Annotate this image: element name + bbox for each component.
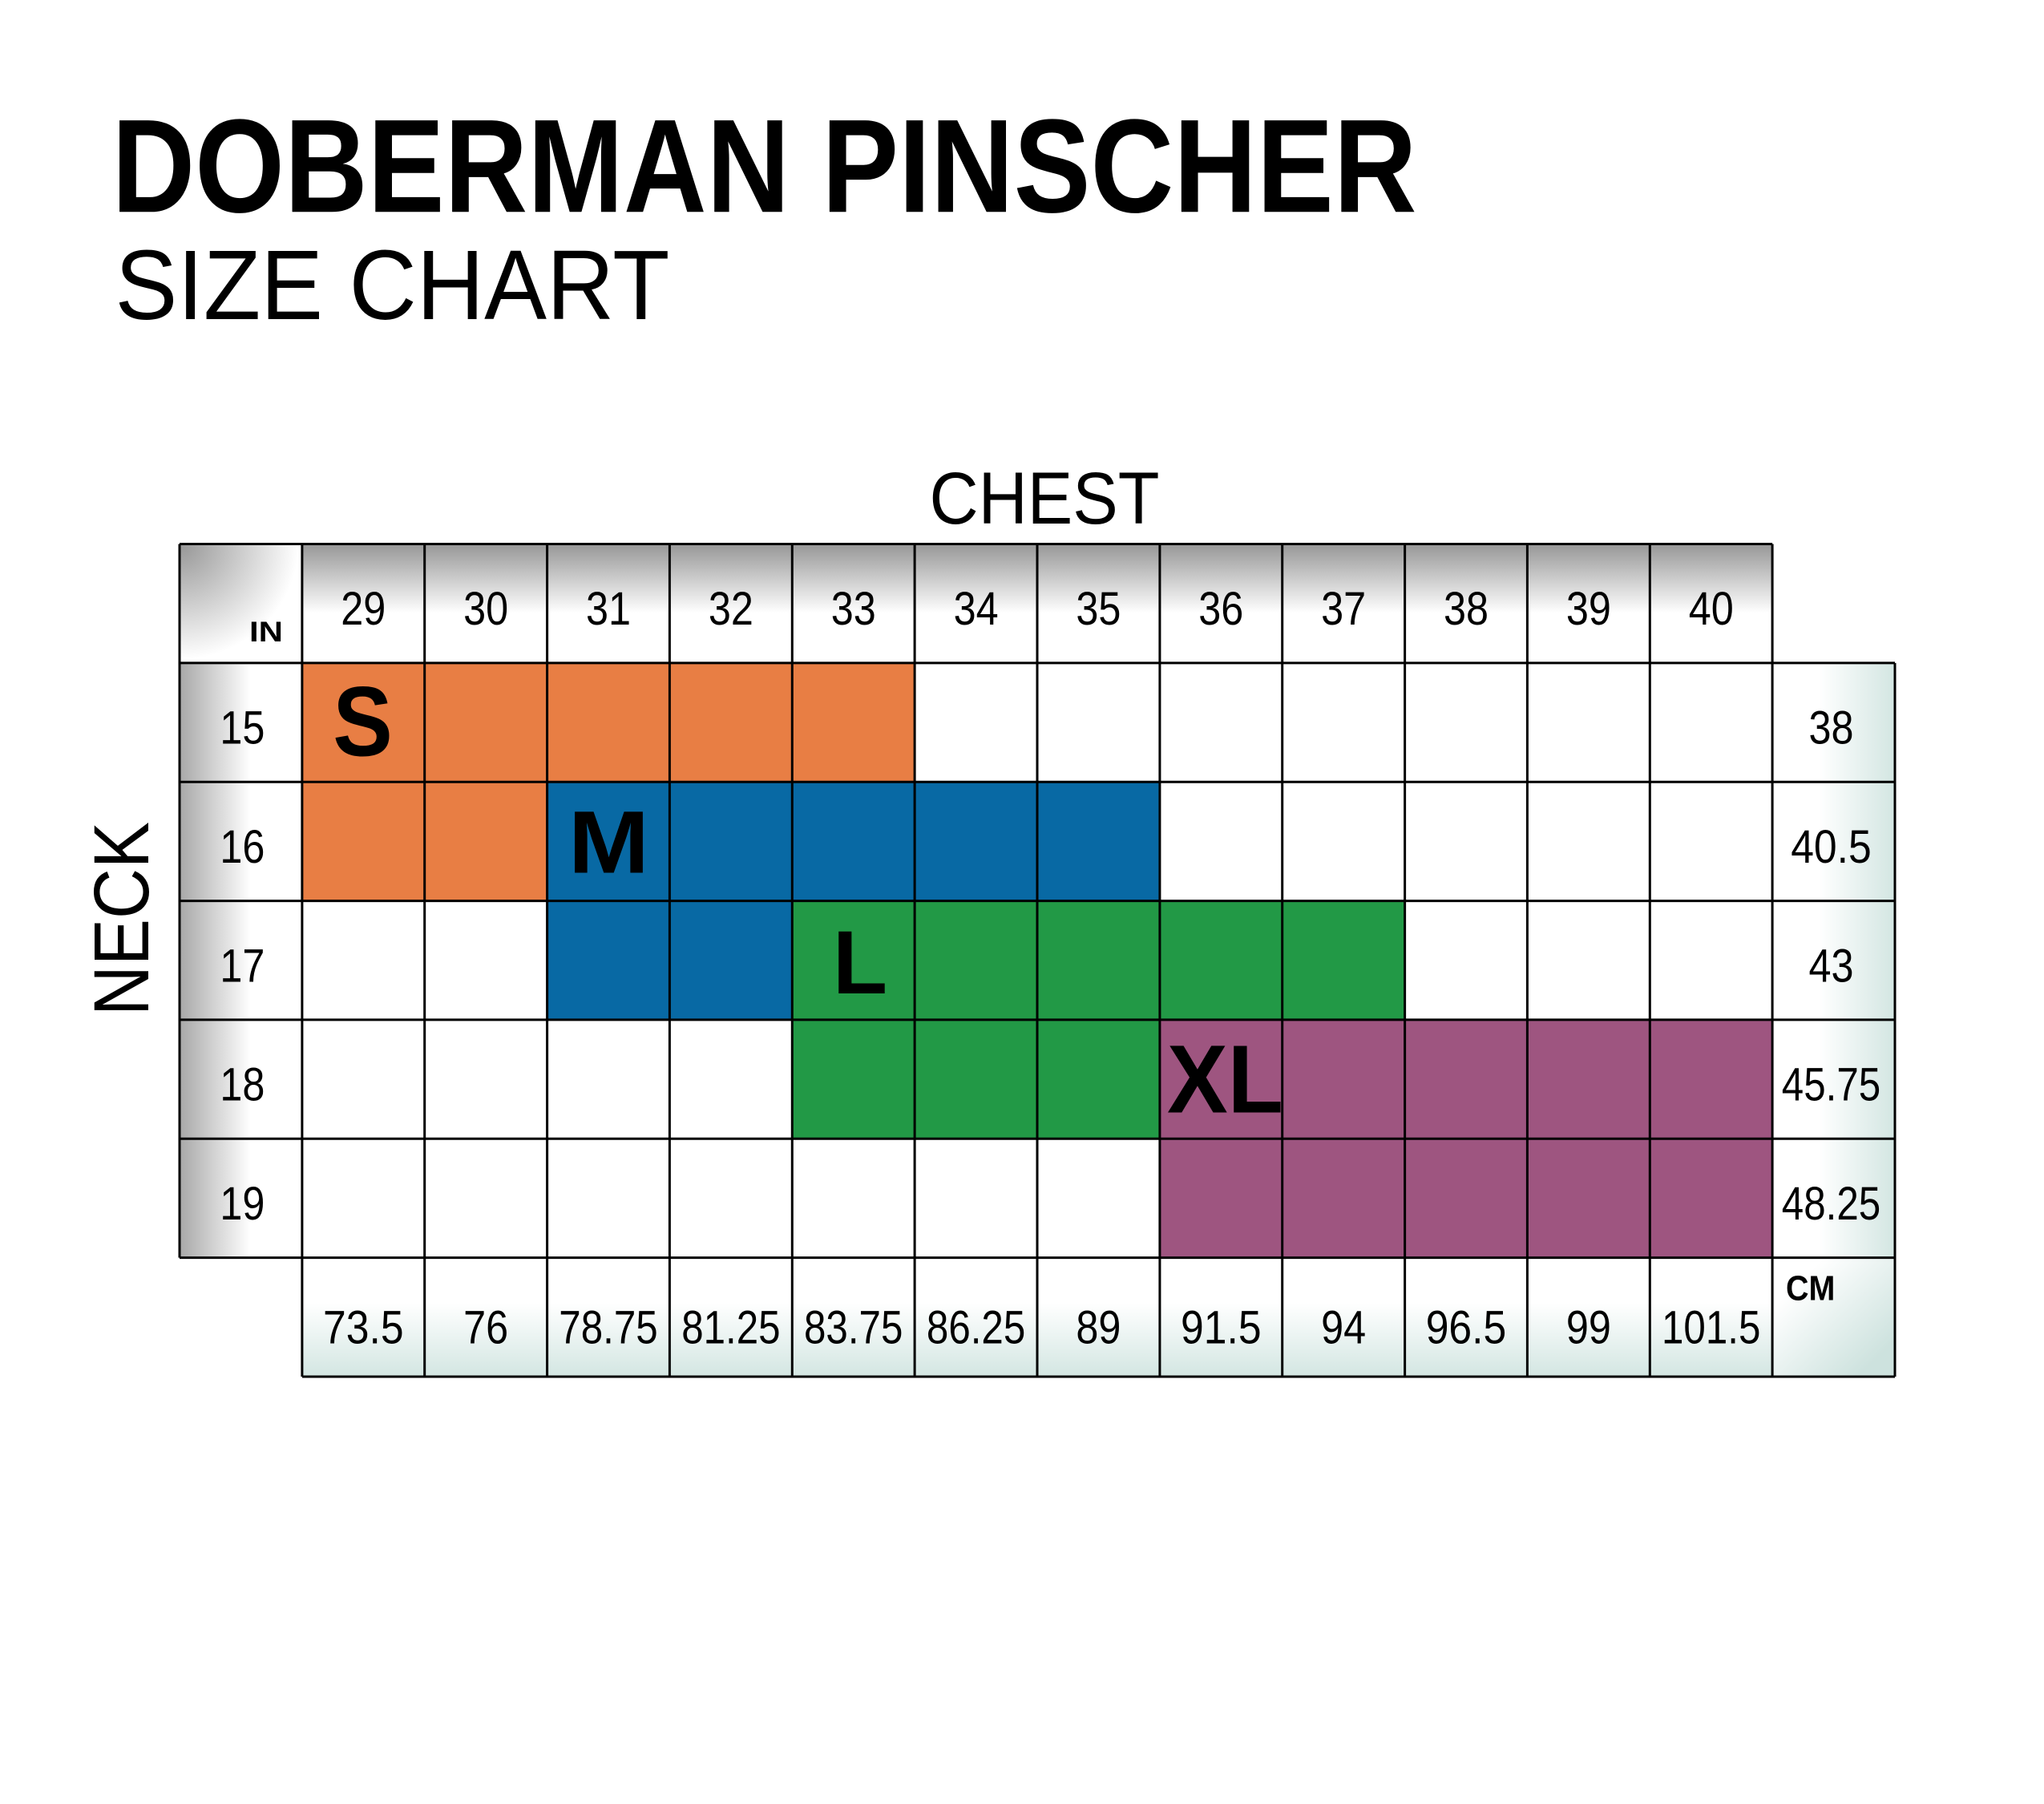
svg-text:29: 29 (341, 583, 386, 635)
svg-text:30: 30 (463, 583, 508, 635)
svg-text:96.5: 96.5 (1426, 1302, 1507, 1354)
svg-text:91.5: 91.5 (1181, 1302, 1262, 1354)
svg-text:IN: IN (249, 617, 283, 648)
svg-text:83.75: 83.75 (804, 1302, 903, 1354)
svg-text:81.25: 81.25 (681, 1302, 780, 1354)
svg-text:17: 17 (220, 940, 265, 992)
svg-text:38: 38 (1809, 702, 1854, 754)
svg-text:40.5: 40.5 (1791, 821, 1872, 873)
svg-text:15: 15 (220, 702, 265, 754)
svg-text:76: 76 (463, 1302, 508, 1354)
svg-text:37: 37 (1321, 583, 1366, 635)
svg-text:M: M (568, 794, 649, 892)
svg-text:31: 31 (586, 583, 631, 635)
svg-text:32: 32 (709, 583, 753, 635)
svg-text:48.25: 48.25 (1782, 1178, 1880, 1230)
svg-text:38: 38 (1444, 583, 1489, 635)
svg-text:89: 89 (1076, 1302, 1121, 1354)
svg-text:45.75: 45.75 (1782, 1059, 1880, 1111)
svg-text:SIZE CHART: SIZE CHART (115, 231, 670, 341)
svg-text:CHEST: CHEST (930, 458, 1160, 540)
svg-text:DOBERMAN PINSCHER: DOBERMAN PINSCHER (112, 92, 1417, 241)
svg-text:35: 35 (1076, 583, 1121, 635)
svg-text:94: 94 (1321, 1302, 1366, 1354)
svg-text:73.5: 73.5 (323, 1302, 404, 1354)
svg-text:43: 43 (1809, 940, 1854, 992)
svg-text:99: 99 (1566, 1302, 1611, 1354)
svg-text:NECK: NECK (78, 822, 165, 1016)
svg-text:XL: XL (1167, 1025, 1283, 1134)
svg-text:L: L (833, 912, 887, 1013)
svg-text:34: 34 (954, 583, 999, 635)
svg-text:36: 36 (1198, 583, 1243, 635)
svg-text:16: 16 (220, 821, 265, 873)
svg-text:78.75: 78.75 (559, 1302, 657, 1354)
svg-text:18: 18 (220, 1059, 265, 1111)
svg-text:86.25: 86.25 (927, 1302, 1025, 1354)
svg-text:40: 40 (1689, 583, 1734, 635)
svg-text:33: 33 (831, 583, 876, 635)
svg-text:39: 39 (1566, 583, 1611, 635)
svg-text:19: 19 (220, 1178, 265, 1230)
svg-text:CM: CM (1786, 1269, 1835, 1309)
svg-text:S: S (333, 668, 393, 778)
svg-text:101.5: 101.5 (1662, 1302, 1760, 1354)
